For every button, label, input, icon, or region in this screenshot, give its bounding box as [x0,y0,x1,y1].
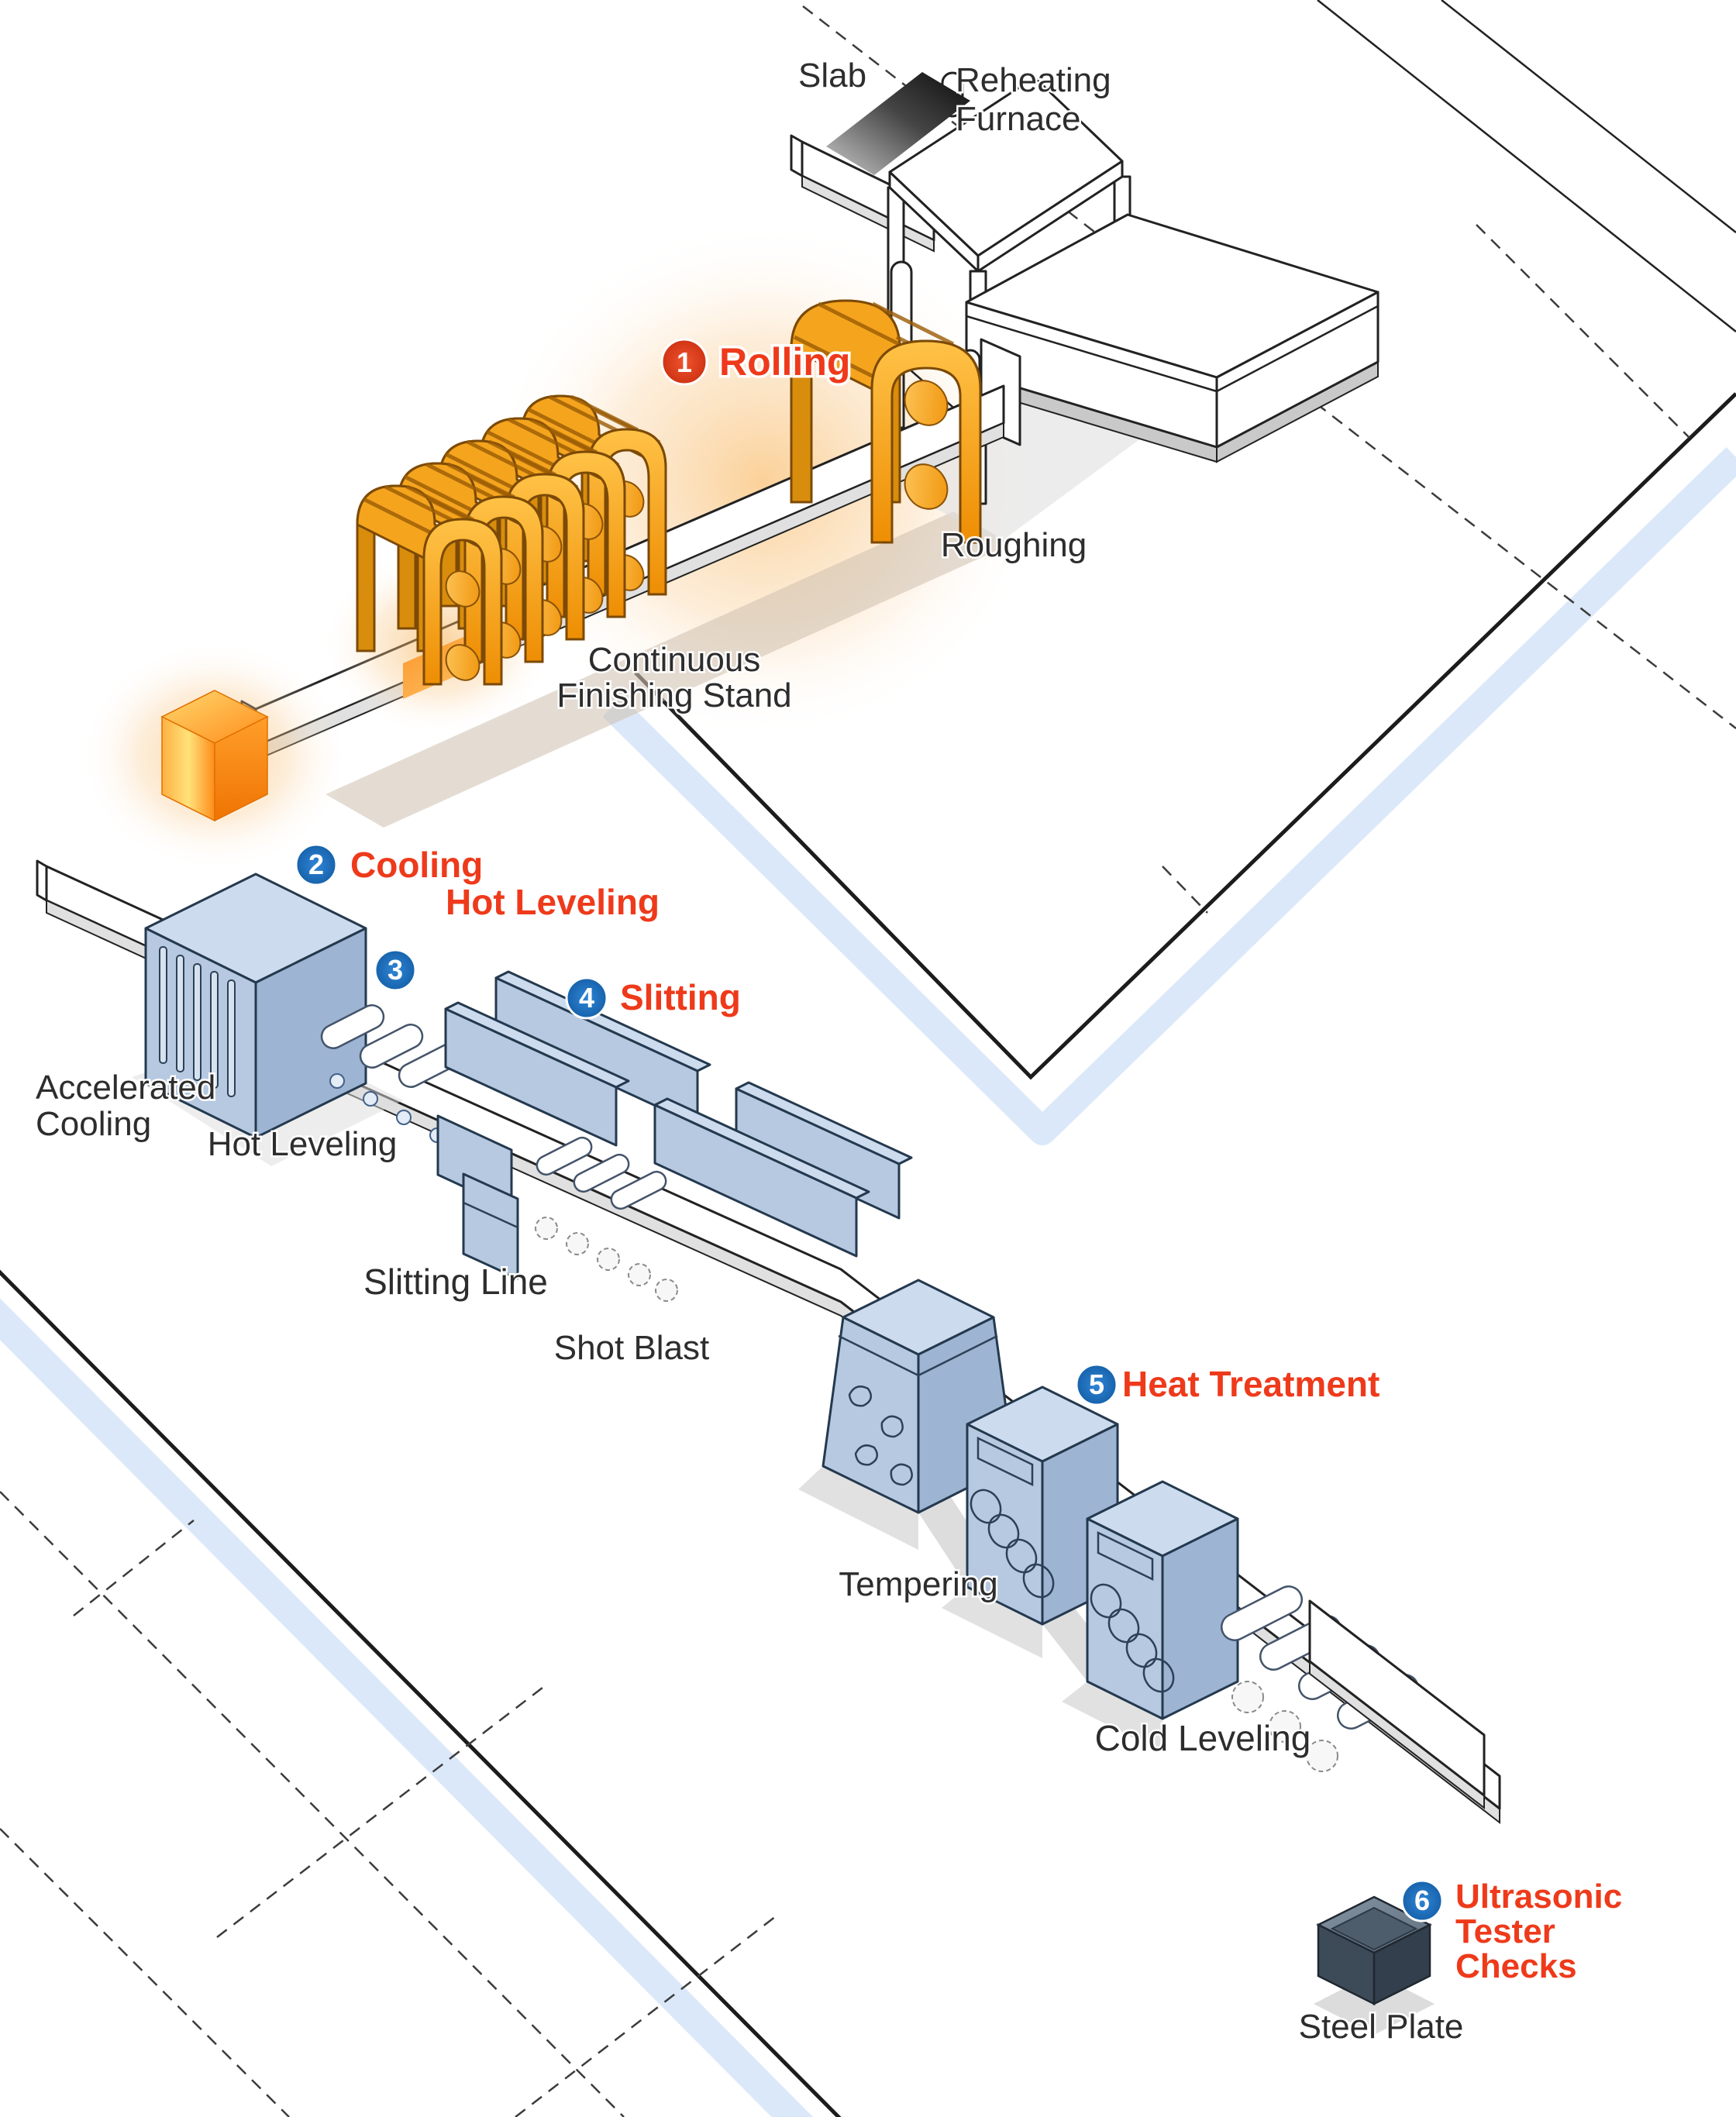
step-label-checks: Checks [1455,1947,1577,1985]
platform-bottom-left [0,1265,845,2117]
step-5-heat-treatment: 5 Heat Treatment [1076,1364,1379,1405]
label-accelerated: Accelerated [36,1069,215,1107]
label-shot-blast: Shot Blast [554,1329,710,1367]
cooling-vent-slot [177,955,184,1072]
heat-treatment-furnaces [798,1280,1238,1753]
process-diagram-canvas: 1 Rolling 2 Cooling 3 Hot Leveling 4 Sli… [0,0,1736,2117]
label-tempering: Tempering [839,1565,997,1603]
step-4-slitting: 4 Slitting [567,977,741,1018]
label-continuous: Continuous [588,641,761,679]
label-furnace: Furnace [956,100,1080,138]
label-finishing-stand: Finishing Stand [556,676,791,714]
step-number-3: 3 [387,954,403,986]
step-number-5: 5 [1089,1368,1104,1400]
label-reheating: Reheating [956,61,1111,99]
label-steel-plate: Steel Plate [1299,2008,1464,2046]
step-label-slitting: Slitting [620,977,741,1017]
process-flow-svg: 1 Rolling 2 Cooling 3 Hot Leveling 4 Sli… [0,0,1736,2117]
step-6-ultrasonic-tester-checks: 6 Ultrasonic Tester Checks [1402,1878,1622,1985]
hot-slab-illustration [162,690,267,821]
step-label-rolling: Rolling [719,340,850,384]
label-cold-leveling: Cold Leveling [1095,1718,1311,1758]
label-slab: Slab [798,57,866,95]
step-label-heat-treatment: Heat Treatment [1122,1364,1379,1404]
step-2-cooling: 2 Cooling [296,845,483,885]
step-1-rolling: 1 Rolling [662,339,850,384]
platform-edge [0,1265,845,2117]
step-label-cooling: Cooling [350,845,483,885]
label-hot-leveling: Hot Leveling [208,1125,398,1163]
heat-treatment-box [1085,1482,1238,1719]
walkway-stripe-bottom-left [0,1288,821,2117]
cooling-vent-slot [228,980,235,1096]
step-number-1: 1 [677,346,692,378]
cooling-vent-slot [160,947,167,1063]
step-number-6: 6 [1414,1885,1430,1916]
step-3-hot-leveling: 3 Hot Leveling [375,882,660,990]
label-slitting-line: Slitting Line [363,1262,548,1302]
finished-plate [1310,1601,1484,1808]
label-accelerated-cooling: Cooling [36,1105,151,1143]
step-number-2: 2 [308,849,324,880]
step-label-ultrasonic: Ultrasonic [1455,1878,1622,1916]
step-number-4: 4 [579,982,594,1014]
cooling-vent-slot [194,964,201,1080]
label-roughing: Roughing [941,526,1087,564]
step-label-hot-leveling: Hot Leveling [446,882,660,922]
step-label-tester: Tester [1455,1912,1555,1950]
